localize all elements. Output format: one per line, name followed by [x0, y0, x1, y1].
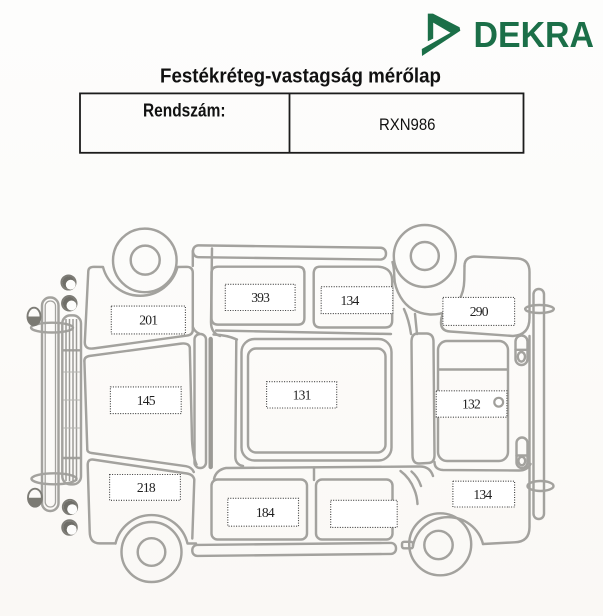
svg-text:132: 132: [462, 397, 481, 412]
svg-text:218: 218: [137, 480, 156, 495]
svg-text:DEKRA: DEKRA: [474, 14, 595, 55]
svg-text:RXN986: RXN986: [379, 116, 436, 134]
svg-text:145: 145: [137, 393, 156, 408]
svg-text:184: 184: [256, 505, 275, 520]
svg-text:201: 201: [139, 313, 157, 328]
svg-text:134: 134: [473, 487, 492, 502]
svg-text:393: 393: [251, 290, 270, 305]
svg-text:Rendszám:: Rendszám:: [143, 101, 226, 121]
svg-text:134: 134: [341, 293, 360, 308]
svg-text:Festékréteg-vastagság mérőlap: Festékréteg-vastagság mérőlap: [160, 66, 441, 88]
svg-text:290: 290: [470, 304, 489, 319]
svg-text:131: 131: [293, 388, 311, 403]
